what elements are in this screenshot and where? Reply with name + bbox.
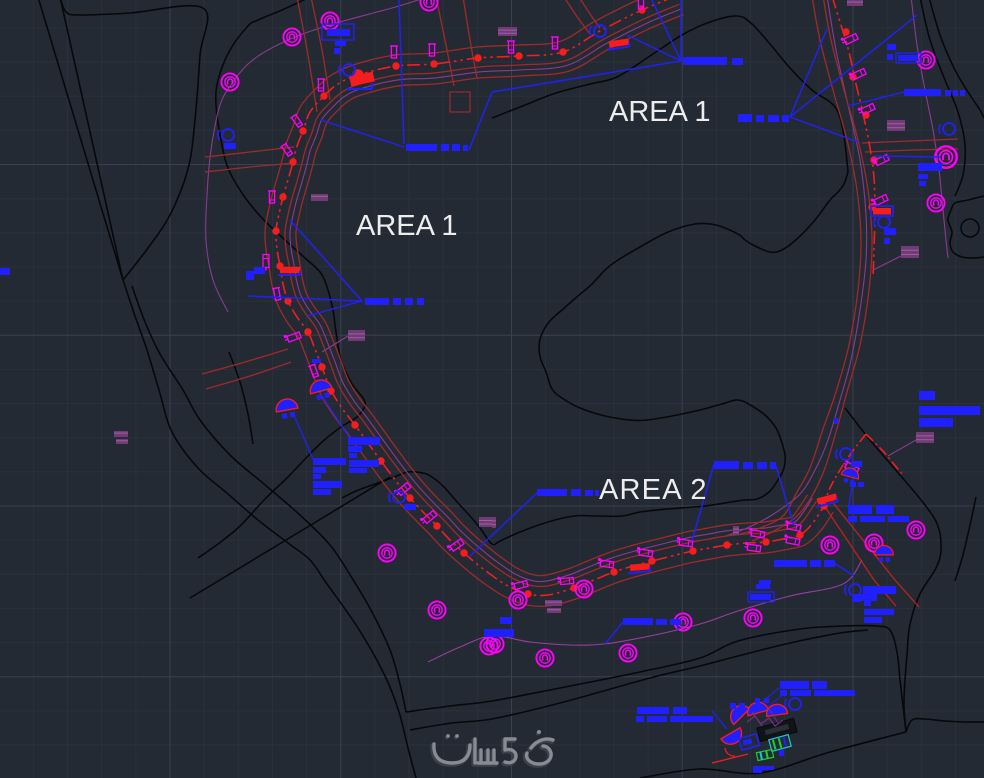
svg-text:AREA 2: AREA 2	[599, 474, 708, 506]
svg-text:AREA 1: AREA 1	[356, 210, 458, 242]
svg-text:AREA 1: AREA 1	[609, 96, 711, 128]
